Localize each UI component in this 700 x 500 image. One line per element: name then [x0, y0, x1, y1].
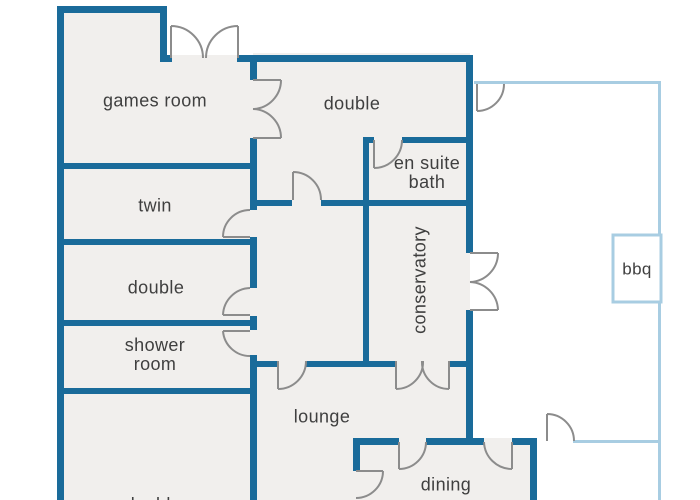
- floor-plan-drawing: [0, 0, 700, 500]
- floor-plan: games room double en suite bath twin con…: [0, 0, 700, 500]
- floor-fills: [57, 6, 537, 500]
- bbq-area: [613, 235, 661, 302]
